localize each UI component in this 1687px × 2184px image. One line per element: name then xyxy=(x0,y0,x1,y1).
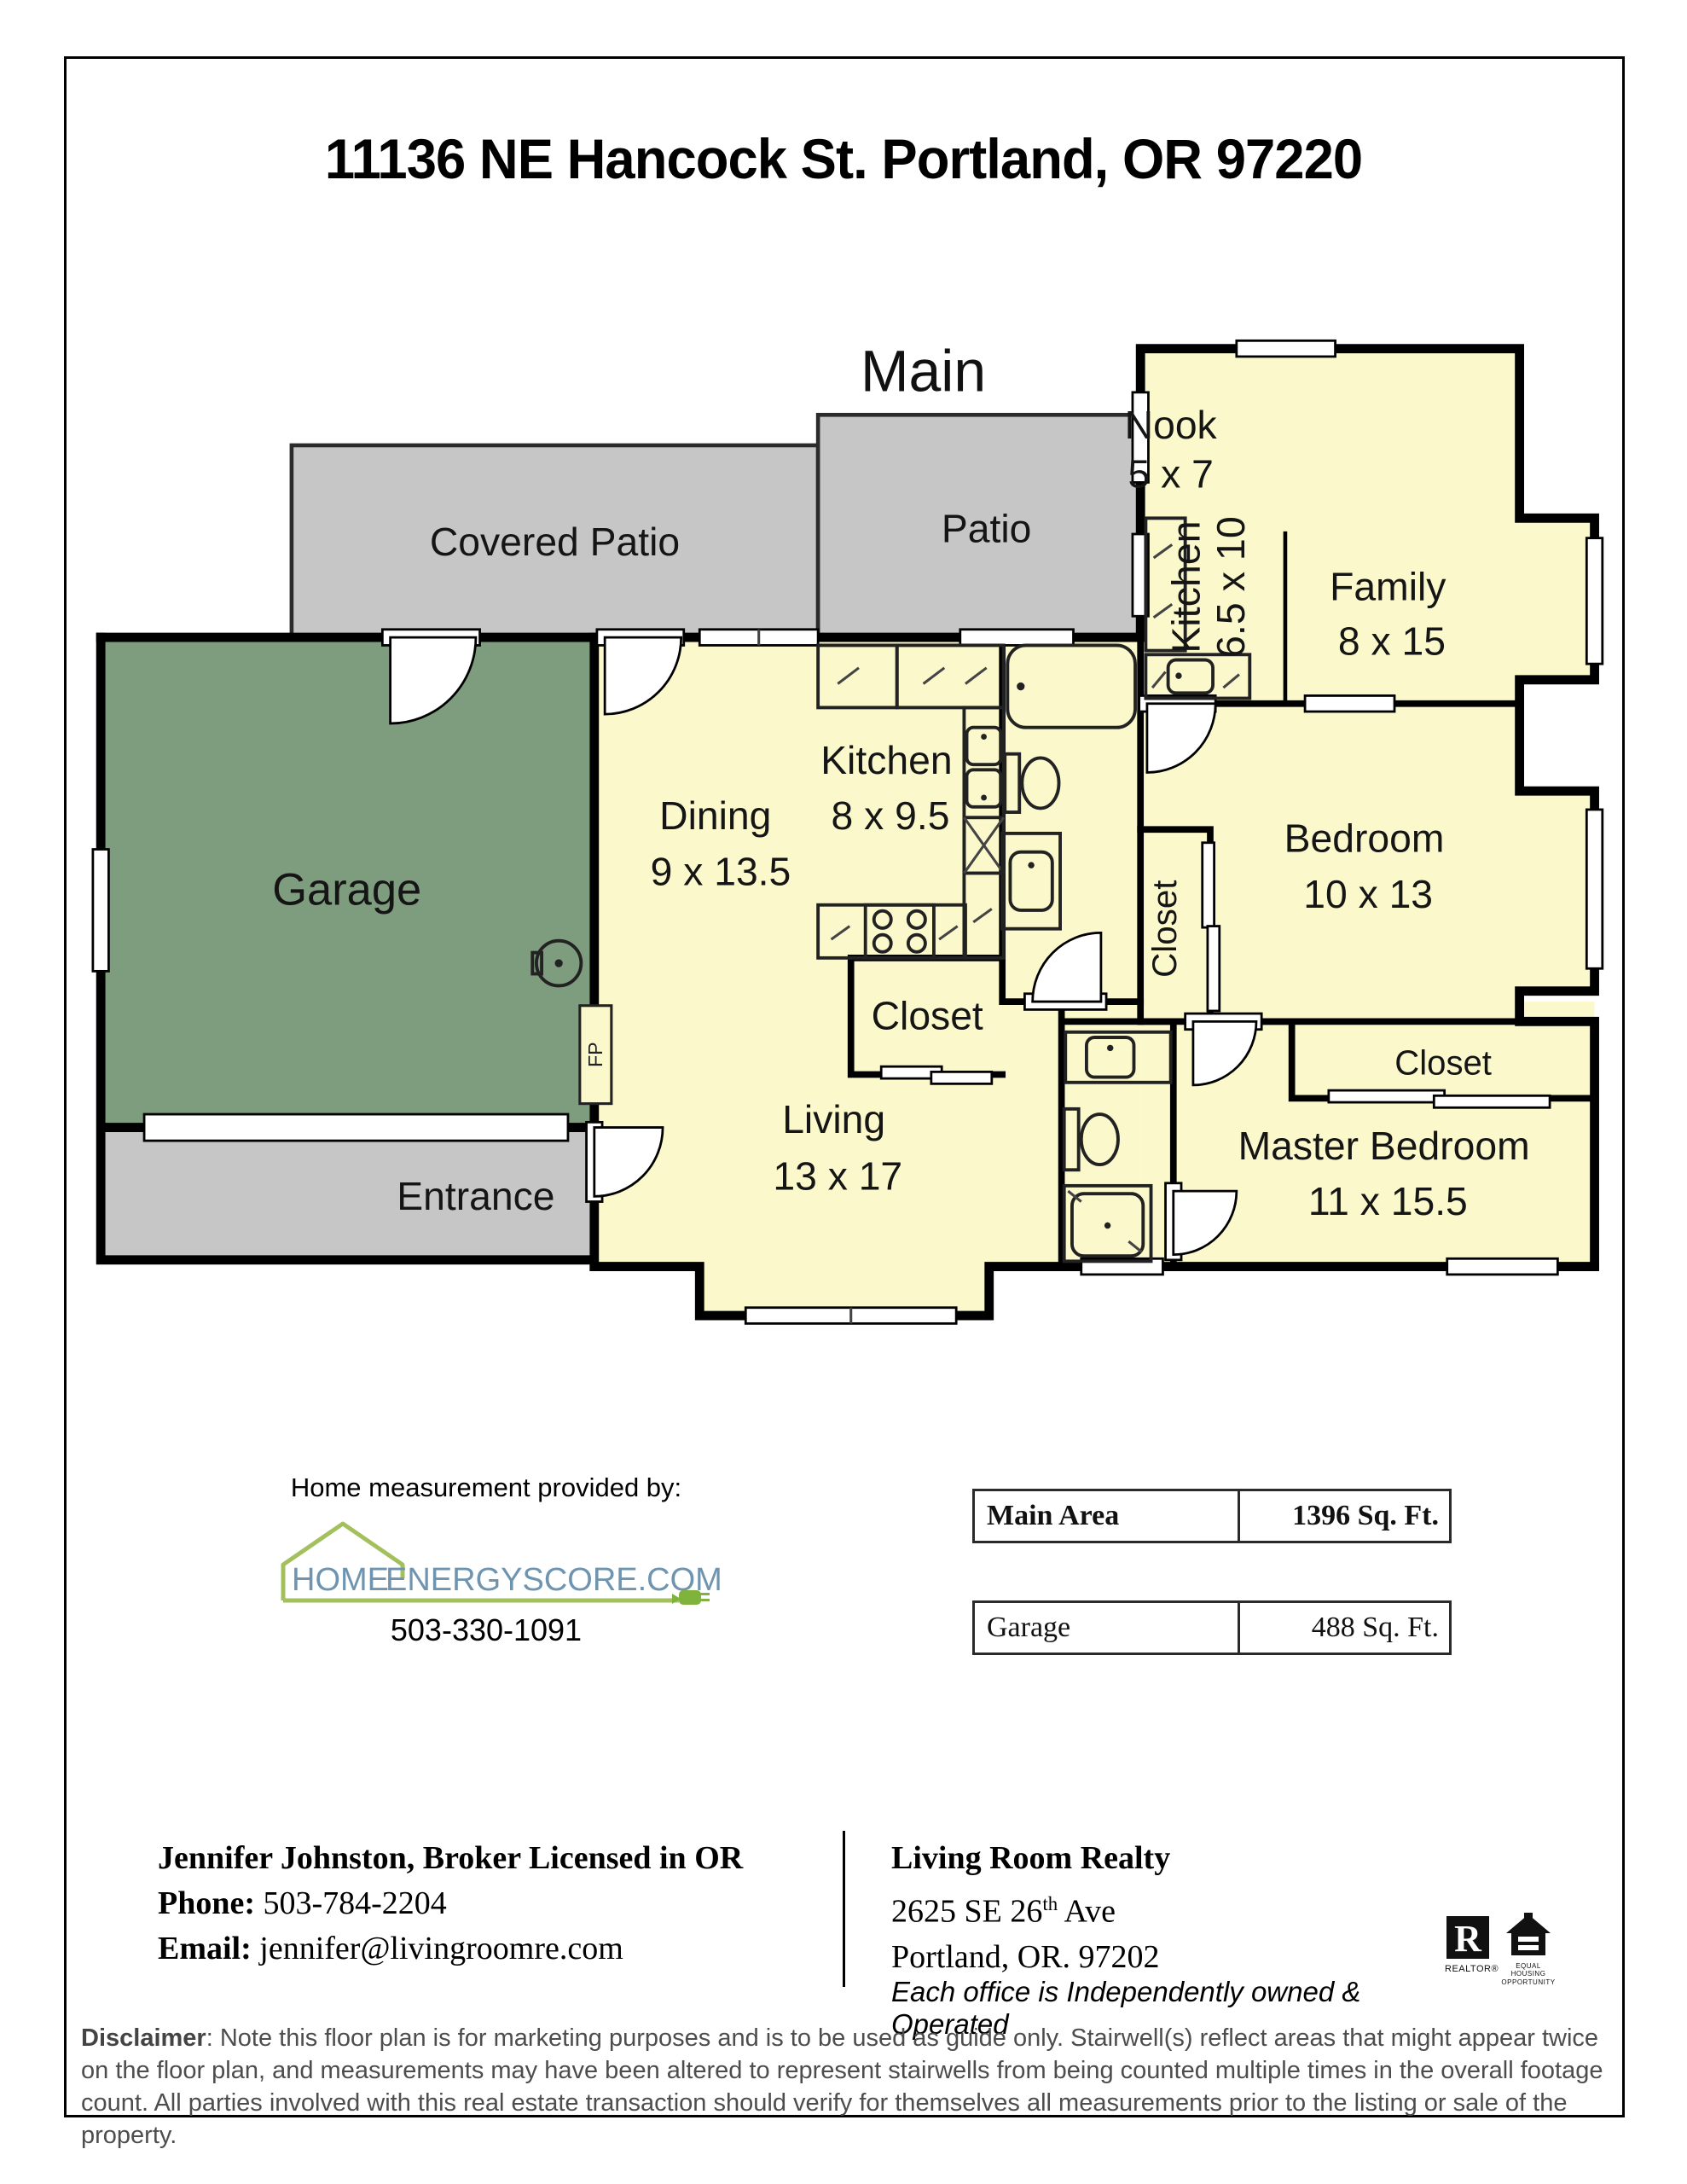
broker-name: Jennifer Johnston, Broker Licensed in OR xyxy=(158,1836,743,1881)
fireplace: FP xyxy=(580,1006,612,1104)
equal-housing-icon xyxy=(1506,1913,1551,1955)
label-bedroom: Bedroom xyxy=(1284,816,1445,861)
label-nook-dims: 5 x 7 xyxy=(1128,452,1214,497)
phone-value: 503-784-2204 xyxy=(255,1885,447,1921)
garage-door xyxy=(144,1114,568,1141)
office-address-line2: Portland, OR. 97202 xyxy=(891,1935,1170,1980)
label-kitchen-small: Kitchen xyxy=(1164,520,1209,653)
area-garage-value: 488 Sq. Ft. xyxy=(1240,1612,1449,1644)
disclaimer-text: : Note this floor plan is for marketing … xyxy=(81,2024,1603,2149)
address-ordinal: th xyxy=(1042,1893,1058,1914)
disclaimer-label: Disclaimer xyxy=(81,2024,206,2052)
contact-divider xyxy=(843,1831,845,1987)
measurement-provided-by: Home measurement provided by: xyxy=(154,1472,819,1503)
eho-caption-line2: OPPORTUNITY xyxy=(1501,1978,1556,1986)
disclaimer: Disclaimer: Note this floor plan is for … xyxy=(81,2022,1616,2152)
email-value: jennifer@livingroomre.com xyxy=(252,1931,623,1966)
label-entrance: Entrance xyxy=(397,1174,554,1218)
label-closet-master: Closet xyxy=(1394,1043,1492,1082)
area-main-value: 1396 Sq. Ft. xyxy=(1240,1500,1449,1532)
label-dining-dims: 9 x 13.5 xyxy=(651,849,791,893)
fireplace-label: FP xyxy=(584,1042,606,1067)
address-street: Ave xyxy=(1058,1894,1116,1930)
logo-text-home: HOME xyxy=(292,1562,389,1598)
label-closet-kitchen: Closet xyxy=(872,994,983,1038)
realtor-r-icon: R xyxy=(1454,1918,1482,1959)
label-master-dims: 11 x 15.5 xyxy=(1308,1179,1468,1223)
page-title: 11136 NE Hancock St. Portland, OR 97220 xyxy=(34,126,1654,191)
label-kitchen-small-dims: 6.5 x 10 xyxy=(1209,516,1253,658)
label-living: Living xyxy=(782,1097,885,1141)
phone-label: Phone: xyxy=(158,1885,255,1921)
label-nook: Nook xyxy=(1125,403,1218,447)
label-patio: Patio xyxy=(942,506,1031,550)
floorplan-drawing: FP Main Covered Patio Patio Nook 5 x 7 F… xyxy=(81,333,1608,1339)
label-bedroom-dims: 10 x 13 xyxy=(1303,872,1433,916)
broker-contact: Jennifer Johnston, Broker Licensed in OR… xyxy=(158,1836,743,1972)
label-kitchen-dims: 8 x 9.5 xyxy=(832,793,950,838)
label-garage: Garage xyxy=(272,865,421,915)
office-name: Living Room Realty xyxy=(891,1836,1170,1881)
measurement-phone: 503-330-1091 xyxy=(154,1612,819,1648)
area-row-garage: Garage 488 Sq. Ft. xyxy=(972,1600,1452,1655)
label-dining: Dining xyxy=(659,793,771,838)
office-contact: Living Room Realty 2625 SE 26th Ave Port… xyxy=(891,1836,1170,1980)
label-closet-bedroom: Closet xyxy=(1145,880,1184,977)
email-label: Email: xyxy=(158,1931,252,1966)
bedroom-bay xyxy=(1520,791,1595,990)
label-covered-patio: Covered Patio xyxy=(430,520,680,564)
measurement-block: Home measurement provided by: HOME ENERG… xyxy=(154,1472,819,1648)
broker-phone-line: Phone: 503-784-2204 xyxy=(158,1881,743,1926)
area-garage-label: Garage xyxy=(975,1603,1240,1653)
home-energyscore-logo: HOME ENERGYSCORE.COM xyxy=(247,1512,725,1607)
eho-caption-line1: EQUAL HOUSING xyxy=(1501,1962,1556,1978)
area-row-main: Main Area 1396 Sq. Ft. xyxy=(972,1489,1452,1543)
office-address-line1: 2625 SE 26th Ave xyxy=(891,1881,1170,1935)
area-main-label: Main Area xyxy=(975,1491,1240,1541)
label-living-dims: 13 x 17 xyxy=(773,1153,902,1198)
label-family: Family xyxy=(1330,565,1446,609)
address-number: 2625 SE 26 xyxy=(891,1894,1042,1930)
level-label: Main xyxy=(861,339,986,404)
label-kitchen: Kitchen xyxy=(820,738,952,782)
equal-housing-logo: EQUAL HOUSING OPPORTUNITY xyxy=(1501,1913,1556,1986)
family-bay xyxy=(1520,518,1595,679)
label-family-dims: 8 x 15 xyxy=(1338,619,1446,663)
realtor-caption: REALTOR® xyxy=(1445,1964,1491,1974)
broker-email-line: Email: jennifer@livingroomre.com xyxy=(158,1926,743,1972)
realtor-logo: R REALTOR® xyxy=(1445,1916,1491,1974)
logo-text-energyscore: ENERGYSCORE.COM xyxy=(386,1562,722,1598)
label-master: Master Bedroom xyxy=(1238,1124,1530,1168)
